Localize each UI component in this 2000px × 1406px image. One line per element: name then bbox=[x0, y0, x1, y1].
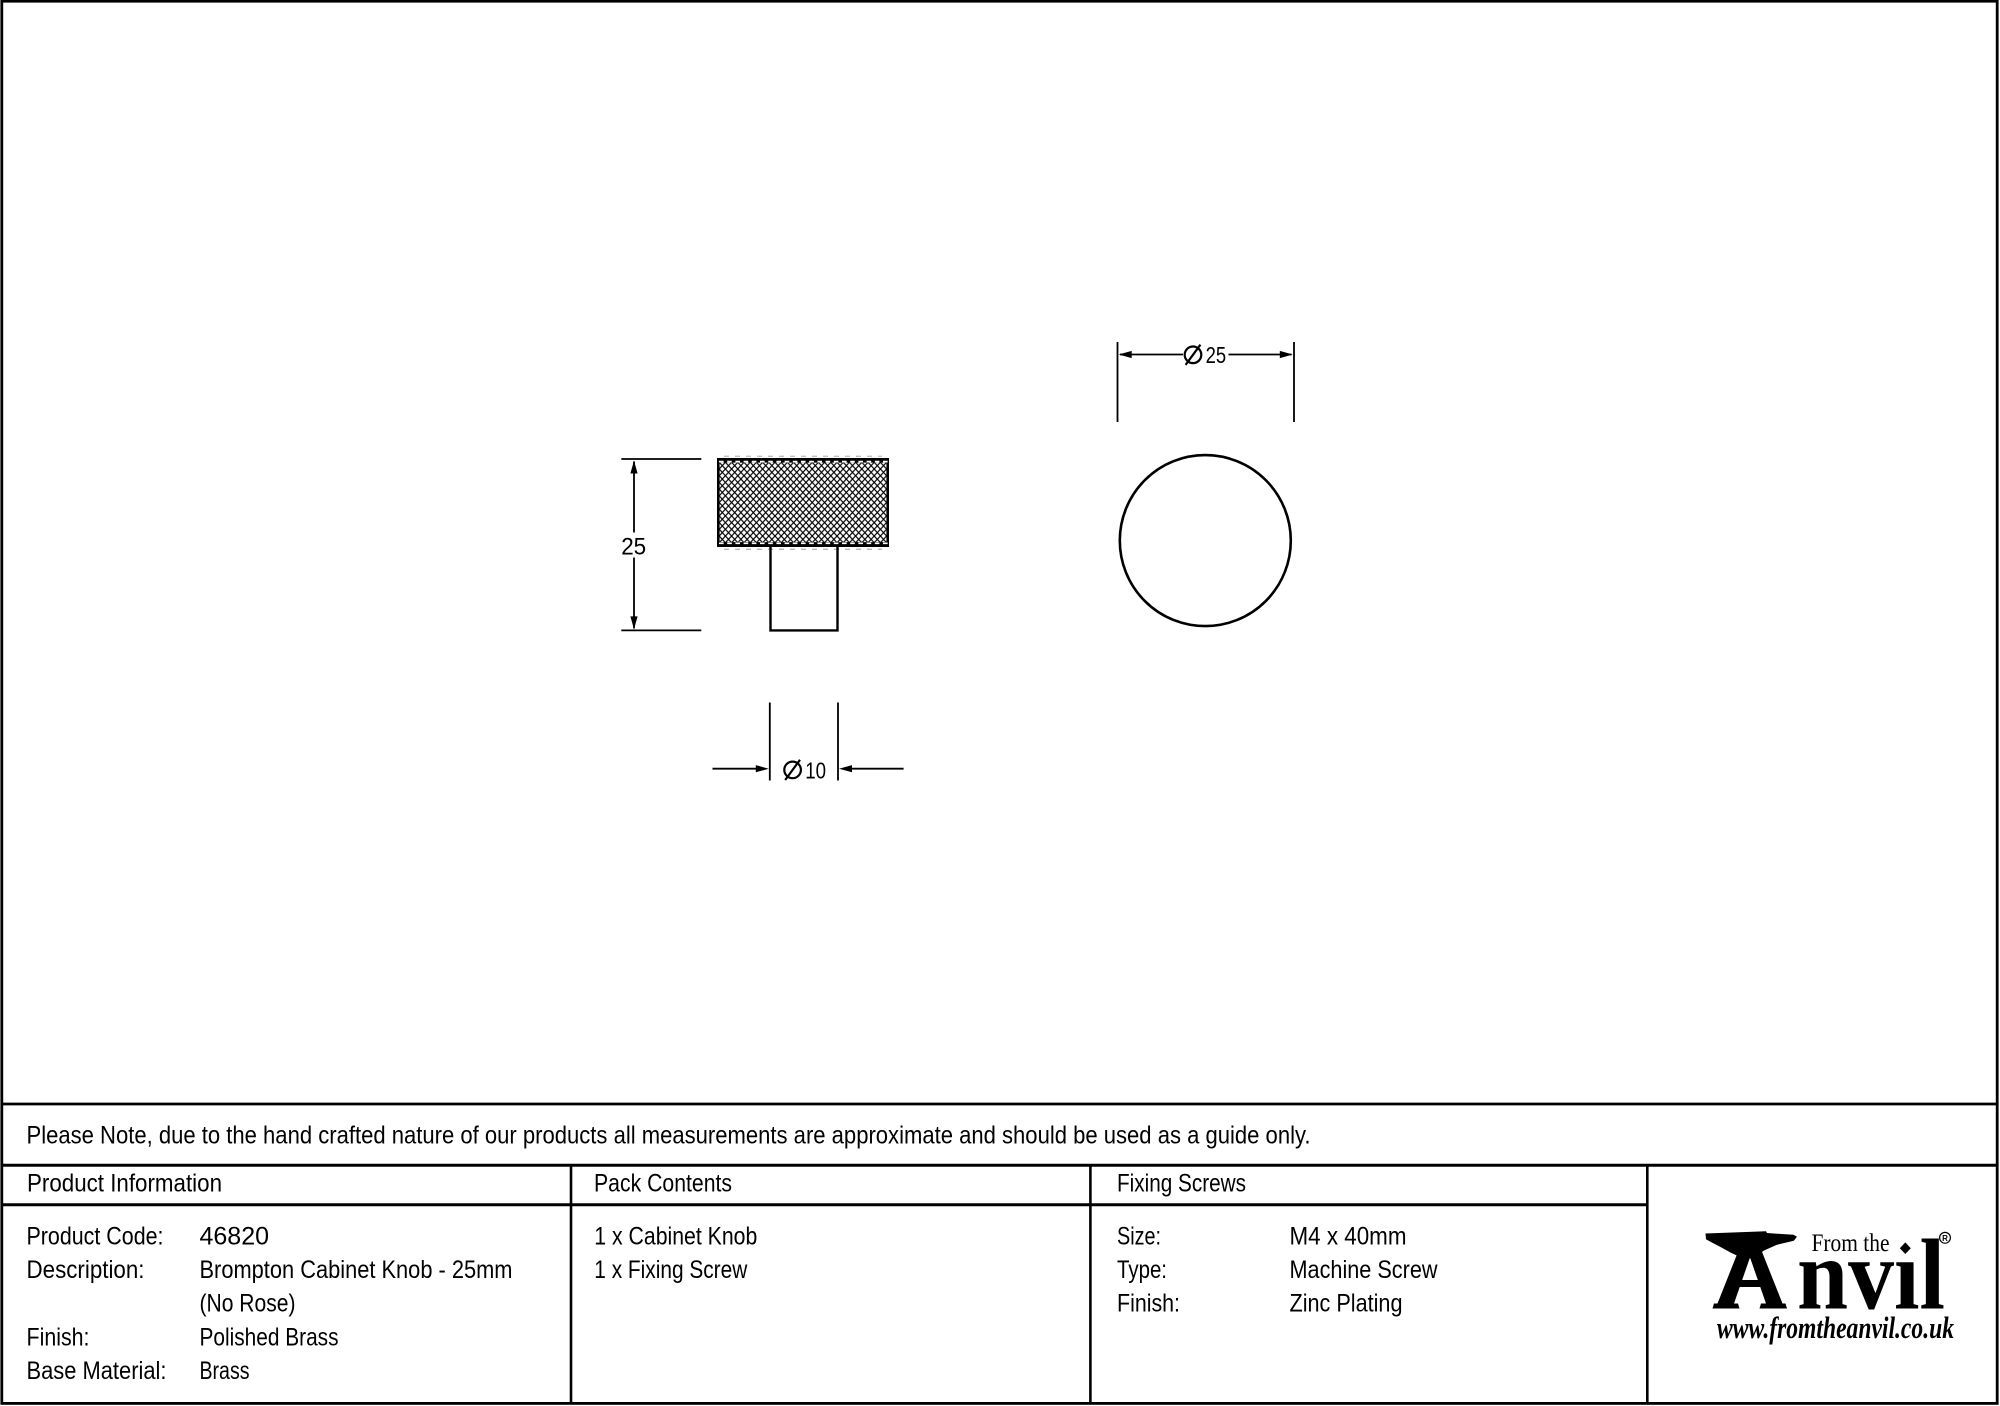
svg-text:www.fromtheanvil.co.uk: www.fromtheanvil.co.uk bbox=[1717, 1310, 1954, 1345]
svg-text:Brompton Cabinet Knob - 25mm: Brompton Cabinet Knob - 25mm bbox=[200, 1256, 513, 1284]
svg-text:Zinc Plating: Zinc Plating bbox=[1290, 1290, 1403, 1318]
svg-text:M4 x 40mm: M4 x 40mm bbox=[1290, 1223, 1407, 1251]
svg-text:Pack Contents: Pack Contents bbox=[594, 1169, 732, 1197]
svg-text:10: 10 bbox=[805, 757, 826, 783]
svg-text:Please Note, due to the hand c: Please Note, due to the hand crafted nat… bbox=[27, 1122, 1311, 1150]
svg-text:Type:: Type: bbox=[1117, 1256, 1167, 1284]
svg-text:Brass: Brass bbox=[200, 1357, 250, 1385]
svg-text:25: 25 bbox=[621, 533, 646, 560]
svg-text:(No Rose): (No Rose) bbox=[200, 1290, 296, 1318]
svg-text:Description:: Description: bbox=[27, 1256, 145, 1284]
svg-text:Product Code:: Product Code: bbox=[27, 1223, 164, 1251]
svg-text:25: 25 bbox=[1206, 342, 1227, 368]
svg-text:1 x Cabinet Knob: 1 x Cabinet Knob bbox=[594, 1223, 757, 1251]
svg-text:Machine Screw: Machine Screw bbox=[1290, 1256, 1439, 1284]
svg-text:R: R bbox=[1942, 1234, 1948, 1243]
svg-text:Finish:: Finish: bbox=[1117, 1290, 1180, 1318]
svg-text:Fixing Screws: Fixing Screws bbox=[1117, 1169, 1246, 1197]
svg-text:Product Information: Product Information bbox=[27, 1169, 222, 1197]
svg-text:46820: 46820 bbox=[200, 1223, 270, 1251]
svg-text:Polished Brass: Polished Brass bbox=[200, 1323, 339, 1351]
svg-text:Size:: Size: bbox=[1117, 1223, 1161, 1251]
svg-text:Finish:: Finish: bbox=[27, 1323, 90, 1351]
svg-text:Base Material:: Base Material: bbox=[27, 1357, 167, 1385]
svg-text:1 x Fixing Screw: 1 x Fixing Screw bbox=[594, 1256, 748, 1284]
